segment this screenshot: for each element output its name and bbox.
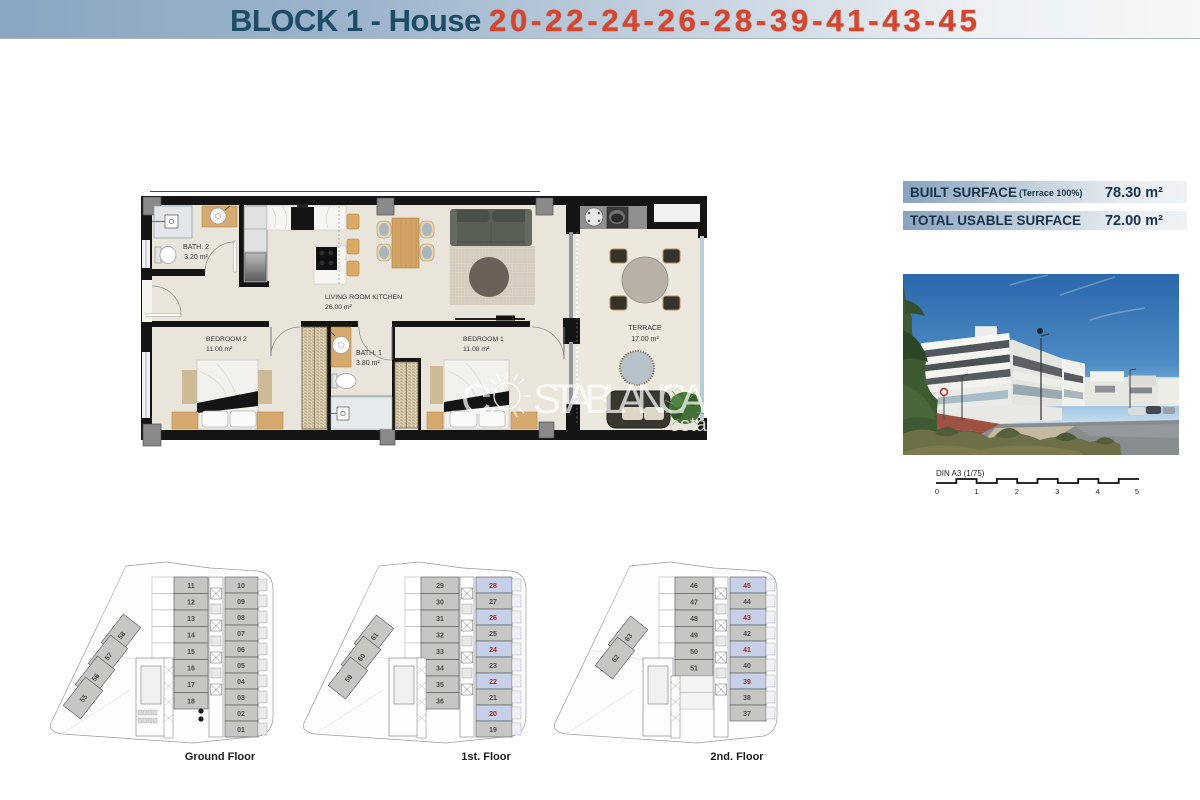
svg-text:17: 17 bbox=[187, 682, 195, 689]
svg-text:23: 23 bbox=[489, 663, 497, 670]
svg-text:40: 40 bbox=[743, 663, 751, 670]
svg-text:42: 42 bbox=[743, 631, 751, 638]
svg-text:26: 26 bbox=[489, 615, 497, 622]
svg-text:20: 20 bbox=[489, 711, 497, 718]
svg-text:35: 35 bbox=[436, 682, 444, 689]
svg-text:12: 12 bbox=[187, 600, 195, 607]
svg-text:11.00 m²: 11.00 m² bbox=[463, 346, 490, 353]
svg-text:3.20 m²: 3.20 m² bbox=[184, 254, 208, 261]
svg-text:15: 15 bbox=[187, 649, 195, 656]
svg-text:19: 19 bbox=[489, 727, 497, 734]
svg-text:LIVING ROOM KITCHEN: LIVING ROOM KITCHEN bbox=[325, 294, 402, 301]
svg-text:01: 01 bbox=[237, 727, 245, 734]
svg-text:2: 2 bbox=[1015, 487, 1019, 496]
svg-text:10: 10 bbox=[237, 583, 245, 590]
svg-text:09: 09 bbox=[237, 599, 245, 606]
svg-text:4: 4 bbox=[1096, 487, 1100, 496]
svg-text:30: 30 bbox=[436, 600, 444, 607]
svg-text:33: 33 bbox=[436, 649, 444, 656]
svg-text:DIN A3 (1/75): DIN A3 (1/75) bbox=[936, 469, 985, 478]
svg-text:11: 11 bbox=[187, 583, 195, 590]
svg-text:BEDROOM 2: BEDROOM 2 bbox=[206, 336, 247, 343]
svg-text:28: 28 bbox=[489, 583, 497, 590]
svg-text:esta: esta bbox=[669, 414, 708, 436]
svg-text:04: 04 bbox=[237, 679, 245, 686]
svg-text:08: 08 bbox=[237, 615, 245, 622]
svg-text:51: 51 bbox=[690, 666, 698, 673]
svg-text:5: 5 bbox=[1135, 487, 1139, 496]
svg-text:18: 18 bbox=[187, 699, 195, 706]
svg-text:3.80 m²: 3.80 m² bbox=[356, 360, 380, 367]
svg-text:21: 21 bbox=[489, 695, 497, 702]
svg-text:0: 0 bbox=[935, 487, 939, 496]
svg-text:45: 45 bbox=[743, 583, 751, 590]
svg-text:TERRACE: TERRACE bbox=[628, 325, 662, 332]
svg-text:05: 05 bbox=[237, 663, 245, 670]
svg-text:TOTAL USABLE SURFACE: TOTAL USABLE SURFACE bbox=[910, 213, 1081, 228]
svg-text:29: 29 bbox=[436, 583, 444, 590]
svg-text:78.30 m²: 78.30 m² bbox=[1105, 185, 1163, 201]
svg-text:Ground Floor: Ground Floor bbox=[185, 751, 256, 763]
svg-text:11.00 m²: 11.00 m² bbox=[206, 346, 233, 353]
svg-text:BEDROOM 1: BEDROOM 1 bbox=[463, 336, 504, 343]
svg-text:36: 36 bbox=[436, 699, 444, 706]
svg-text:13: 13 bbox=[187, 616, 195, 623]
svg-text:1: 1 bbox=[974, 487, 978, 496]
svg-text:49: 49 bbox=[690, 633, 698, 640]
svg-text:16: 16 bbox=[187, 666, 195, 673]
svg-text:22: 22 bbox=[489, 679, 497, 686]
svg-text:1st. Floor: 1st. Floor bbox=[461, 751, 511, 763]
svg-text:26.00 m²: 26.00 m² bbox=[325, 304, 353, 311]
svg-text:14: 14 bbox=[187, 633, 195, 640]
svg-text:48: 48 bbox=[690, 616, 698, 623]
svg-text:34: 34 bbox=[436, 666, 444, 673]
svg-text:39: 39 bbox=[743, 679, 751, 686]
svg-text:BUILT SURFACE: BUILT SURFACE bbox=[910, 185, 1017, 200]
svg-text:41: 41 bbox=[743, 647, 751, 654]
svg-text:47: 47 bbox=[690, 600, 698, 607]
svg-text:2nd. Floor: 2nd. Floor bbox=[710, 751, 764, 763]
svg-text:37: 37 bbox=[743, 711, 751, 718]
svg-text:43: 43 bbox=[743, 615, 751, 622]
svg-text:3: 3 bbox=[1055, 487, 1059, 496]
svg-text:44: 44 bbox=[743, 599, 751, 606]
svg-text:25: 25 bbox=[489, 631, 497, 638]
svg-text:03: 03 bbox=[237, 695, 245, 702]
svg-text:50: 50 bbox=[690, 649, 698, 656]
svg-text:BATH. 2: BATH. 2 bbox=[183, 244, 209, 251]
svg-text:C: C bbox=[461, 375, 491, 422]
svg-text:31: 31 bbox=[436, 616, 444, 623]
svg-text:38: 38 bbox=[743, 695, 751, 702]
svg-text:27: 27 bbox=[489, 599, 497, 606]
svg-text:46: 46 bbox=[690, 583, 698, 590]
svg-text:(Terrace 100%): (Terrace 100%) bbox=[1019, 188, 1082, 198]
svg-text:17.00 m²: 17.00 m² bbox=[631, 336, 659, 343]
svg-text:32: 32 bbox=[436, 633, 444, 640]
svg-text:02: 02 bbox=[237, 711, 245, 718]
svg-text:07: 07 bbox=[237, 631, 245, 638]
svg-text:06: 06 bbox=[237, 647, 245, 654]
svg-text:24: 24 bbox=[489, 647, 497, 654]
svg-text:72.00 m²: 72.00 m² bbox=[1105, 213, 1163, 229]
